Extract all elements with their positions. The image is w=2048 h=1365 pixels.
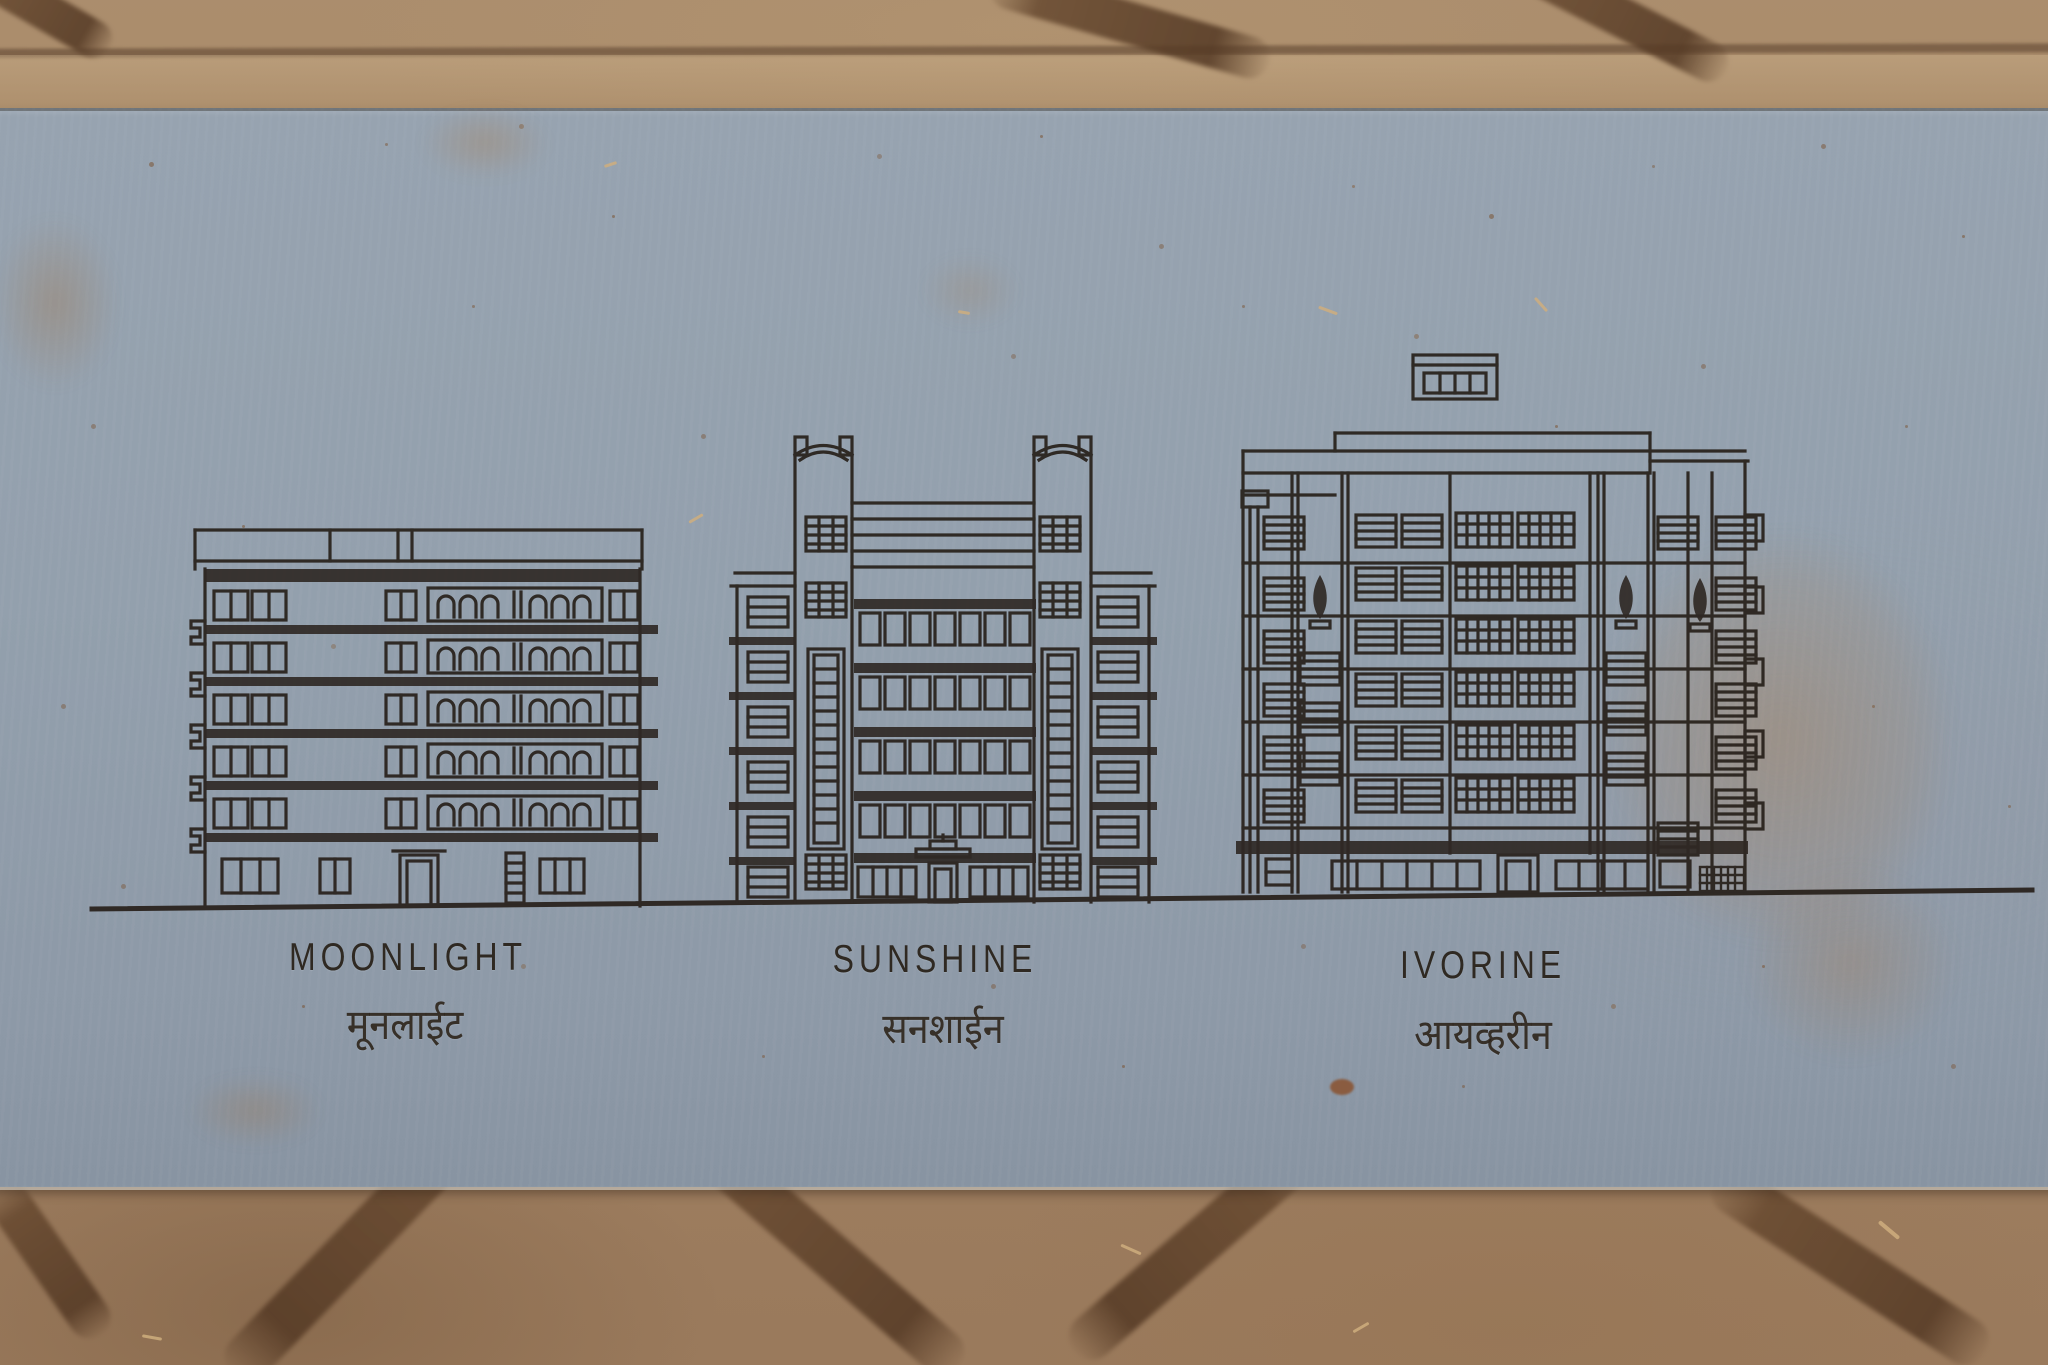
label-sunshine: SUNSHINE — [833, 938, 1038, 982]
label-moonlight-devanagari: मूनलाईट — [347, 995, 464, 1052]
plaque-photograph: MOONLIGHT SUNSHINE IVORINE मूनलाईट सनशाई… — [0, 0, 2048, 1365]
plaque-content: MOONLIGHT SUNSHINE IVORINE मूनलाईट सनशाई… — [0, 3, 2048, 1365]
ivorine-ground-floor — [1266, 855, 1744, 892]
ivorine-building-drawing — [1236, 355, 1763, 892]
label-ivorine: IVORINE — [1400, 944, 1566, 988]
sunshine-building-drawing — [729, 437, 1157, 902]
moonlight-ground-floor — [222, 851, 584, 906]
sunshine-entrance — [858, 835, 1028, 902]
label-ivorine-devanagari: आयव्हरीन — [1414, 1005, 1552, 1062]
ground-line — [92, 890, 2032, 909]
metal-plaque: MOONLIGHT SUNSHINE IVORINE मूनलाईट सनशाई… — [0, 108, 2048, 1187]
label-moonlight: MOONLIGHT — [289, 936, 527, 980]
label-sunshine-devanagari: सनशाईन — [882, 999, 1004, 1056]
engraved-elevations — [0, 3, 2048, 1365]
moonlight-building-drawing — [191, 530, 658, 906]
